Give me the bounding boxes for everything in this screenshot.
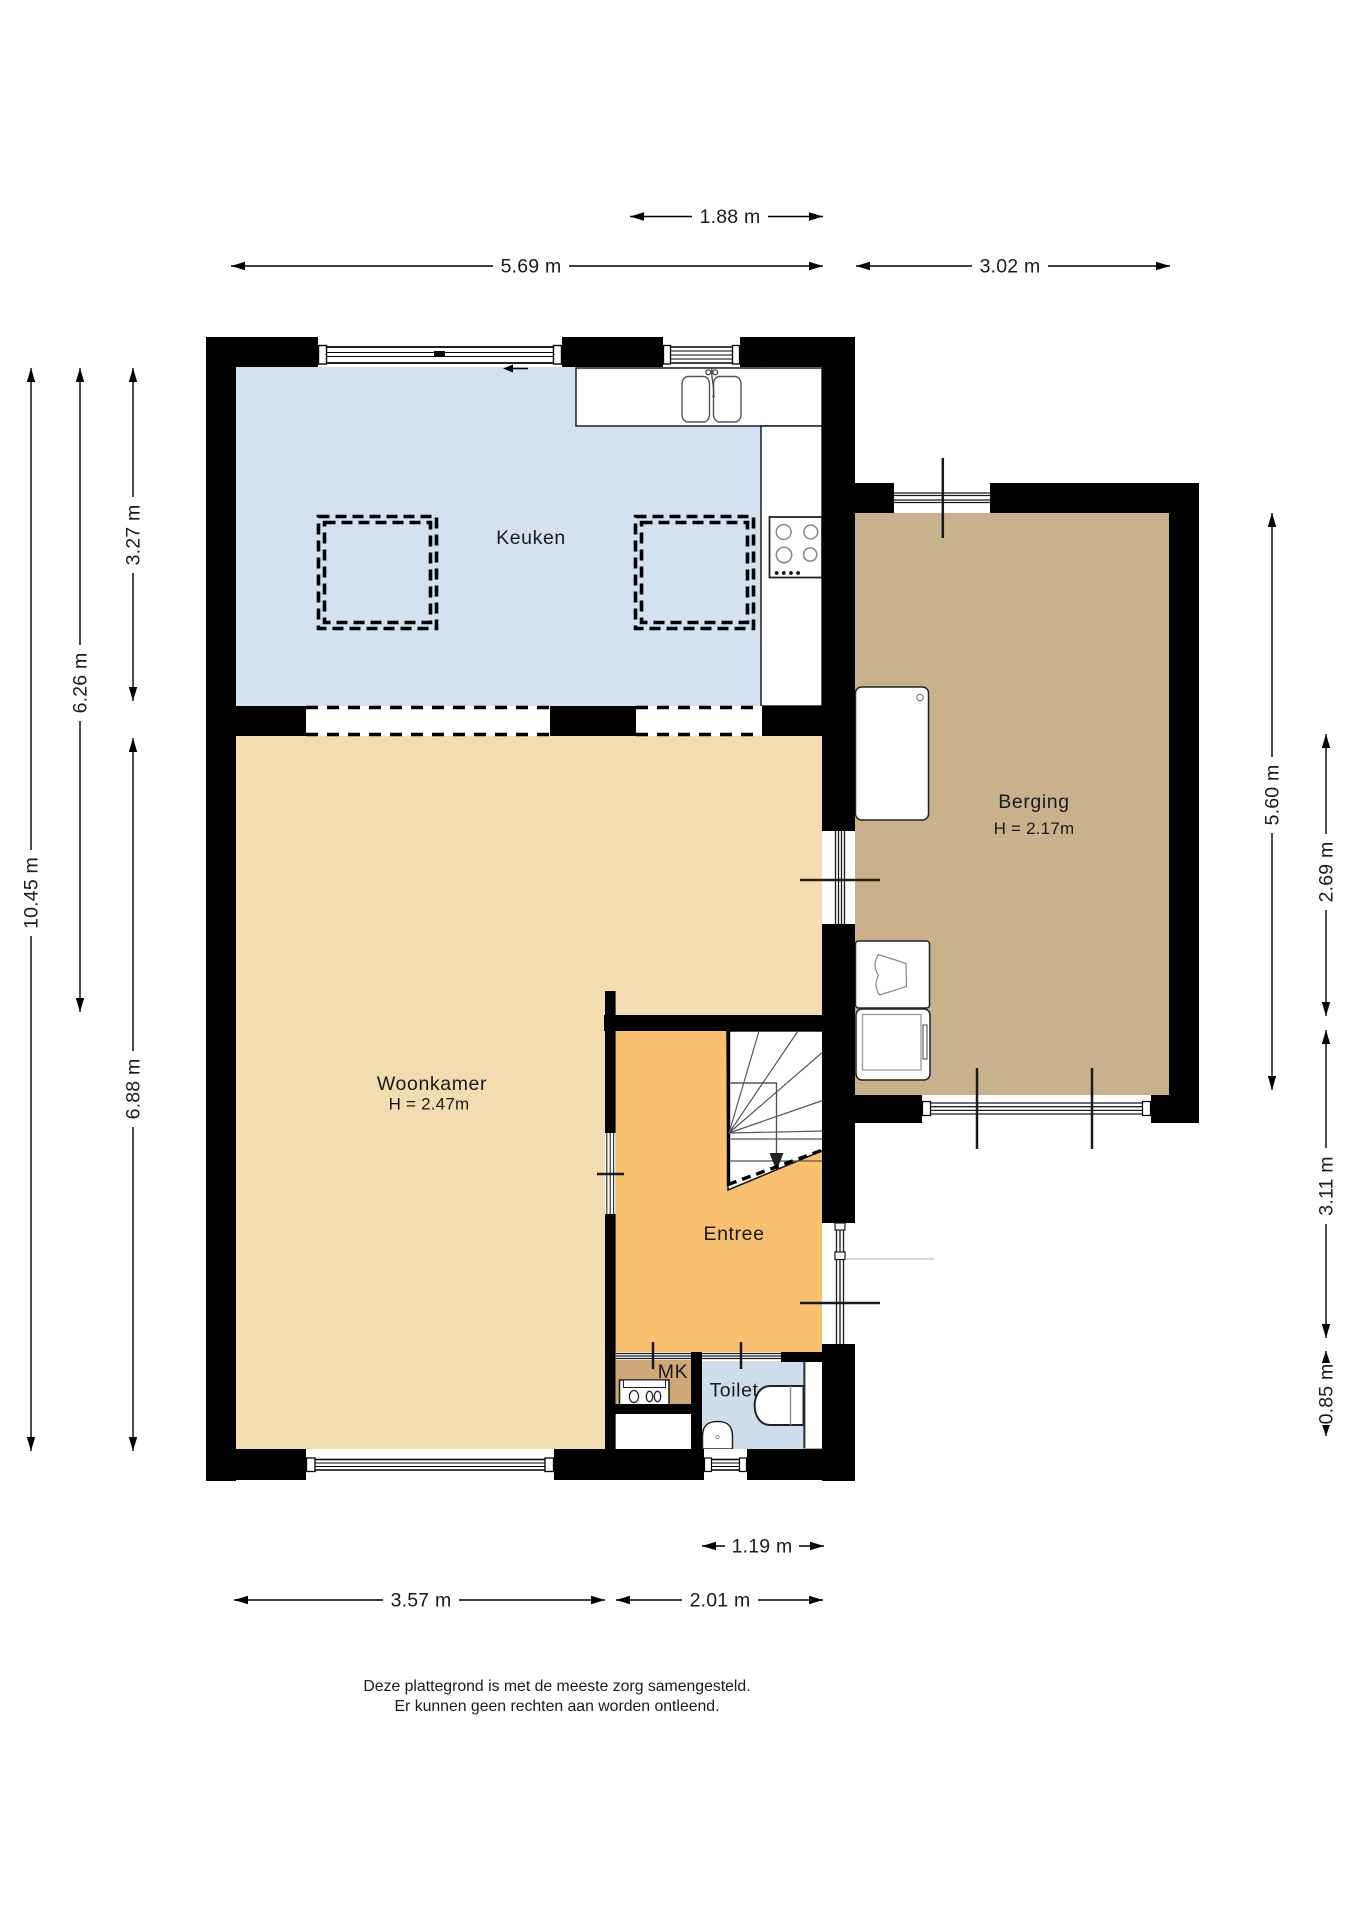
svg-text:5.60 m: 5.60 m (1262, 765, 1284, 826)
svg-text:H = 2.47m: H = 2.47m (389, 1095, 470, 1114)
svg-text:3.57 m: 3.57 m (391, 1590, 452, 1612)
svg-text:2.01 m: 2.01 m (690, 1590, 751, 1612)
svg-text:Entree: Entree (703, 1223, 764, 1245)
svg-text:1.88 m: 1.88 m (700, 206, 761, 228)
svg-text:MK: MK (658, 1361, 688, 1383)
svg-text:Deze plattegrond is met de mee: Deze plattegrond is met de meeste zorg s… (363, 1678, 750, 1695)
svg-text:3.27 m: 3.27 m (123, 505, 145, 566)
svg-text:10.45 m: 10.45 m (21, 857, 43, 929)
svg-text:6.88 m: 6.88 m (123, 1059, 145, 1120)
svg-text:Er kunnen geen rechten aan wor: Er kunnen geen rechten aan worden ontlee… (395, 1698, 720, 1715)
svg-text:0.85 m: 0.85 m (1316, 1364, 1338, 1425)
svg-text:Woonkamer: Woonkamer (377, 1073, 487, 1095)
svg-text:3.02 m: 3.02 m (980, 256, 1041, 278)
svg-text:1.19 m: 1.19 m (732, 1536, 793, 1558)
svg-text:3.11 m: 3.11 m (1316, 1156, 1338, 1215)
svg-text:2.69 m: 2.69 m (1316, 842, 1338, 903)
svg-text:5.69 m: 5.69 m (501, 256, 562, 278)
svg-text:Toilet: Toilet (709, 1380, 758, 1402)
svg-text:H = 2.17m: H = 2.17m (994, 819, 1075, 838)
svg-text:Berging: Berging (998, 791, 1069, 813)
svg-text:Keuken: Keuken (496, 527, 566, 549)
svg-text:6.26 m: 6.26 m (70, 653, 92, 714)
